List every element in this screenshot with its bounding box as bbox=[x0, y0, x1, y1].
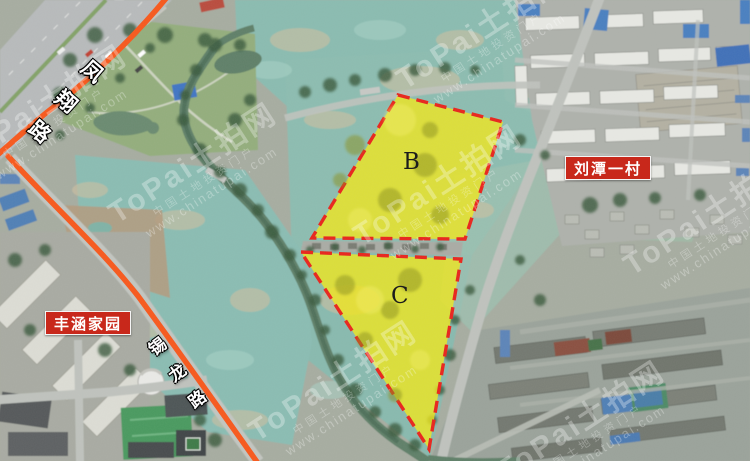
aerial-map-screenshot: ToPai土拍网 中国土地投资门户 www.chinatupai.com ToP… bbox=[0, 0, 750, 461]
aerial-map-image bbox=[0, 0, 750, 461]
photo-grain-overlay bbox=[0, 0, 750, 461]
